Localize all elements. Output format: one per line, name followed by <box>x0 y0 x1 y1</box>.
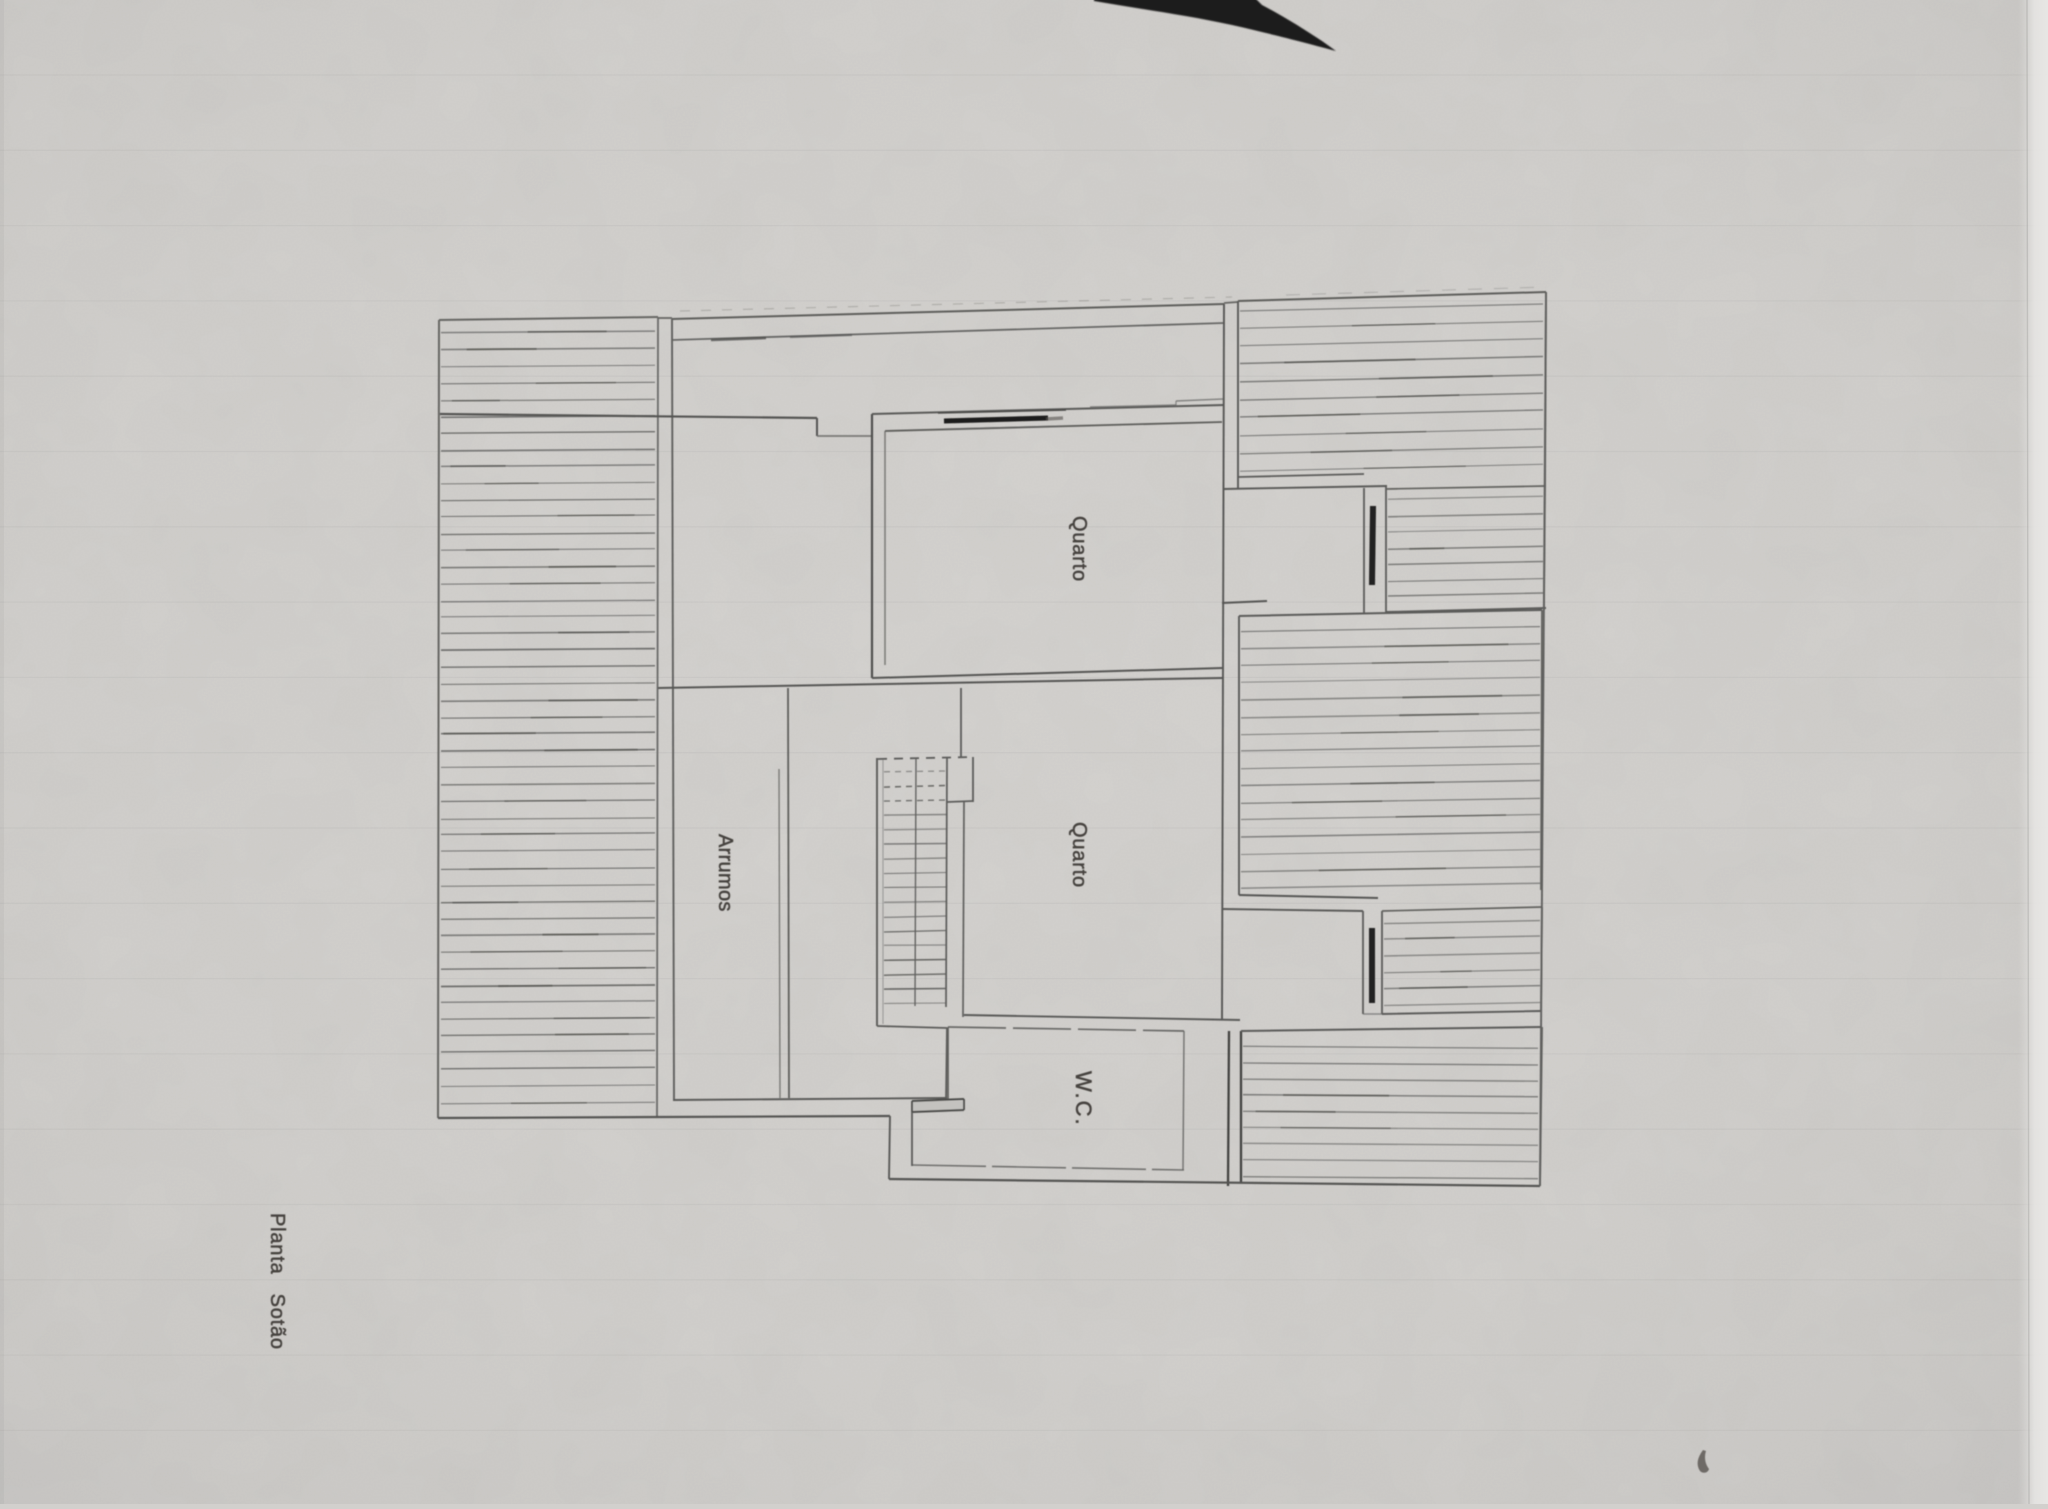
svg-text:Arrumos: Arrumos <box>714 834 736 912</box>
svg-text:Quarto: Quarto <box>1068 516 1090 582</box>
svg-text:Planta Sotão: Planta Sotão <box>266 1213 288 1350</box>
svg-text:Quarto: Quarto <box>1068 822 1090 888</box>
svg-text:W.C.: W.C. <box>1071 1071 1096 1127</box>
